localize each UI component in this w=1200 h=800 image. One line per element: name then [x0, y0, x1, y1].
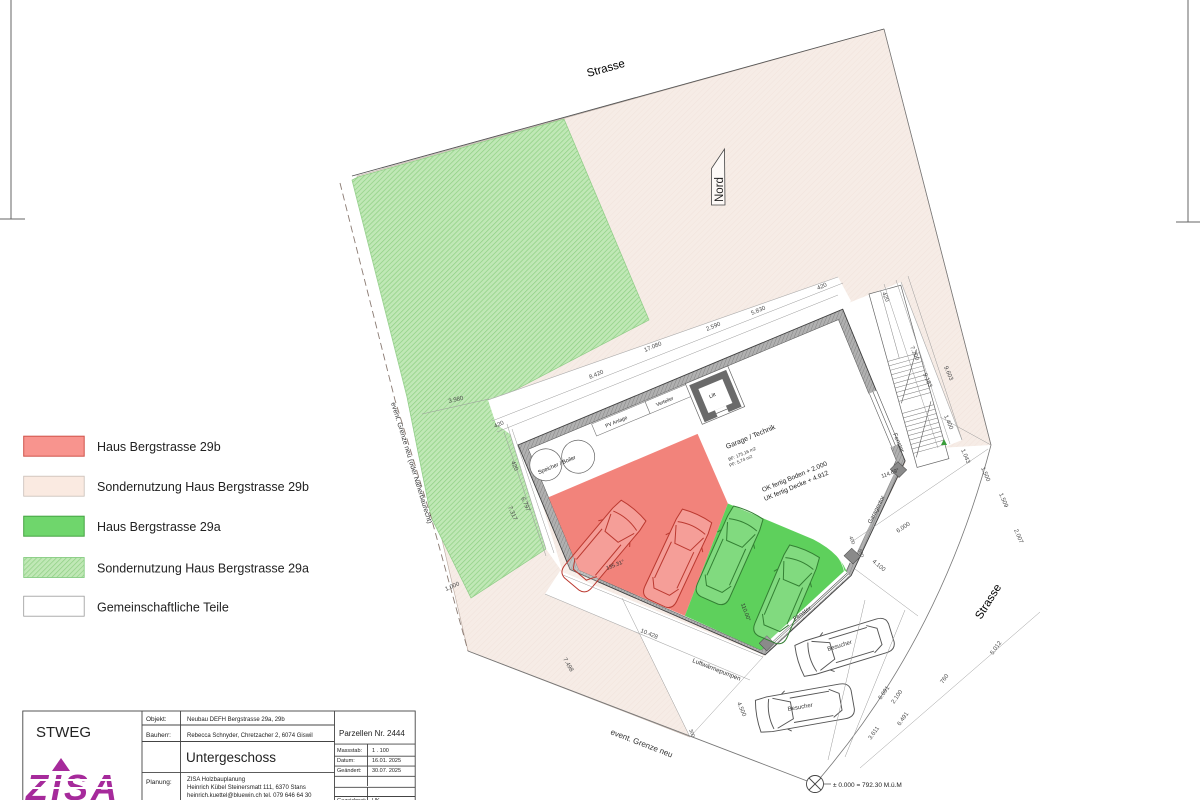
svg-text:Neubau DEFH Bergstrasse 29a, 2: Neubau DEFH Bergstrasse 29a, 29b	[187, 717, 285, 723]
svg-text:Nord: Nord	[714, 177, 726, 202]
svg-text:Haus Bergstrasse 29b: Haus Bergstrasse 29b	[97, 440, 221, 454]
svg-text:Geändert:: Geändert:	[337, 768, 362, 774]
svg-text:± 0.000 = 792.30 M.ü.M: ± 0.000 = 792.30 M.ü.M	[833, 782, 902, 789]
svg-text:Bauherr:: Bauherr:	[146, 732, 171, 739]
svg-text:Haus Bergstrasse 29a: Haus Bergstrasse 29a	[97, 520, 221, 534]
svg-text:Parzellen Nr. 2444: Parzellen Nr. 2444	[339, 729, 405, 738]
svg-text:30.07. 2025: 30.07. 2025	[372, 768, 401, 774]
svg-text:Objekt:: Objekt:	[146, 716, 167, 723]
svg-text:ZISA Holzbauplanung: ZISA Holzbauplanung	[187, 777, 245, 783]
svg-text:Untergeschoss: Untergeschoss	[186, 750, 276, 765]
svg-text:Heinrich Kübel Steinersmatt 11: Heinrich Kübel Steinersmatt 111, 6370 St…	[187, 785, 306, 791]
svg-text:ZISA: ZISA	[25, 767, 120, 800]
svg-text:16.01. 2025: 16.01. 2025	[372, 758, 401, 764]
svg-text:1 . 100: 1 . 100	[372, 748, 389, 754]
svg-text:Gemeinschaftliche Teile: Gemeinschaftliche Teile	[97, 601, 229, 615]
svg-text:Massstab:: Massstab:	[337, 748, 363, 754]
svg-text:heinrich.kuettel@bluewin.ch: heinrich.kuettel@bluewin.ch tel. 079 646…	[187, 793, 312, 799]
svg-text:Planung:: Planung:	[146, 779, 172, 786]
svg-text:STWEG: STWEG	[36, 724, 91, 741]
svg-text:Rebecca Schnyder, Chretzache: Rebecca Schnyder, Chretzacher 2, 6074 Gi…	[187, 733, 313, 739]
svg-text:Sondernutzung Haus Bergstrass: Sondernutzung Haus Bergstrasse 29b	[97, 480, 309, 494]
svg-text:Sondernutzung Haus Bergstrasse: Sondernutzung Haus Bergstrasse 29a	[97, 562, 309, 576]
svg-text:Datum:: Datum:	[337, 758, 355, 764]
